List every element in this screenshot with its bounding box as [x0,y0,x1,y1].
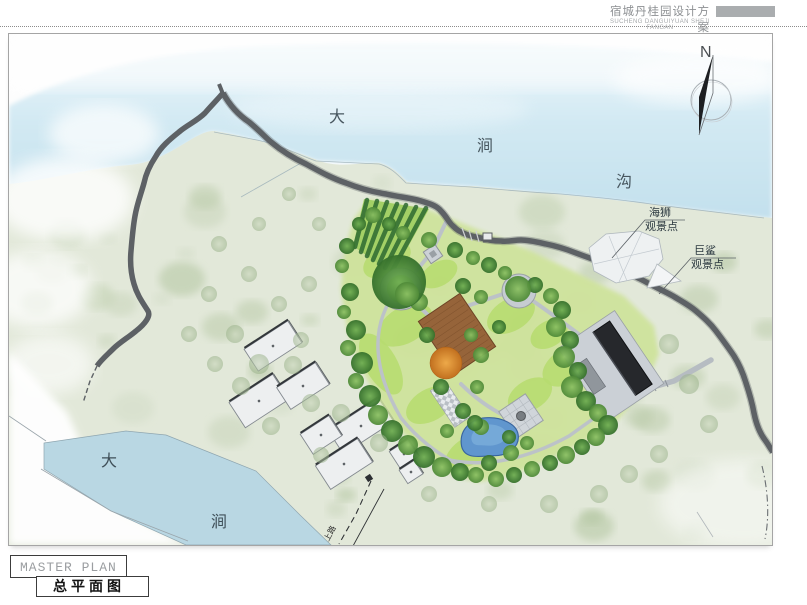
north-label: N [700,44,712,62]
viewpoint-sealion-type: 观景点 [645,221,678,232]
viewpoint-shark-name: 巨鲨 [694,245,716,256]
viewpoint-sealion-name: 海狮 [649,207,671,218]
titleblock-chinese: 总平面图 [36,576,149,597]
viewpoint-shark-type: 观景点 [691,259,724,270]
stream-label-jian: 涧 [477,138,493,154]
river-label-da: 大 [101,453,117,469]
stream-label-gou: 沟 [616,174,632,190]
stream-label-da: 大 [329,109,345,125]
title-accent-bar [716,6,775,17]
titleblock-english: MASTER PLAN [10,555,127,578]
presentation-page: 宿城丹桂园设计方案 SUCHENG DANGUIYUAN SHEJI FANGA… [0,0,807,605]
autumn-tree [430,347,462,379]
river-label-jian: 涧 [211,514,227,530]
master-plan-canvas [8,33,773,546]
header-divider [0,26,807,27]
page-subtitle: SUCHENG DANGUIYUAN SHEJI FANGAN [596,19,724,31]
